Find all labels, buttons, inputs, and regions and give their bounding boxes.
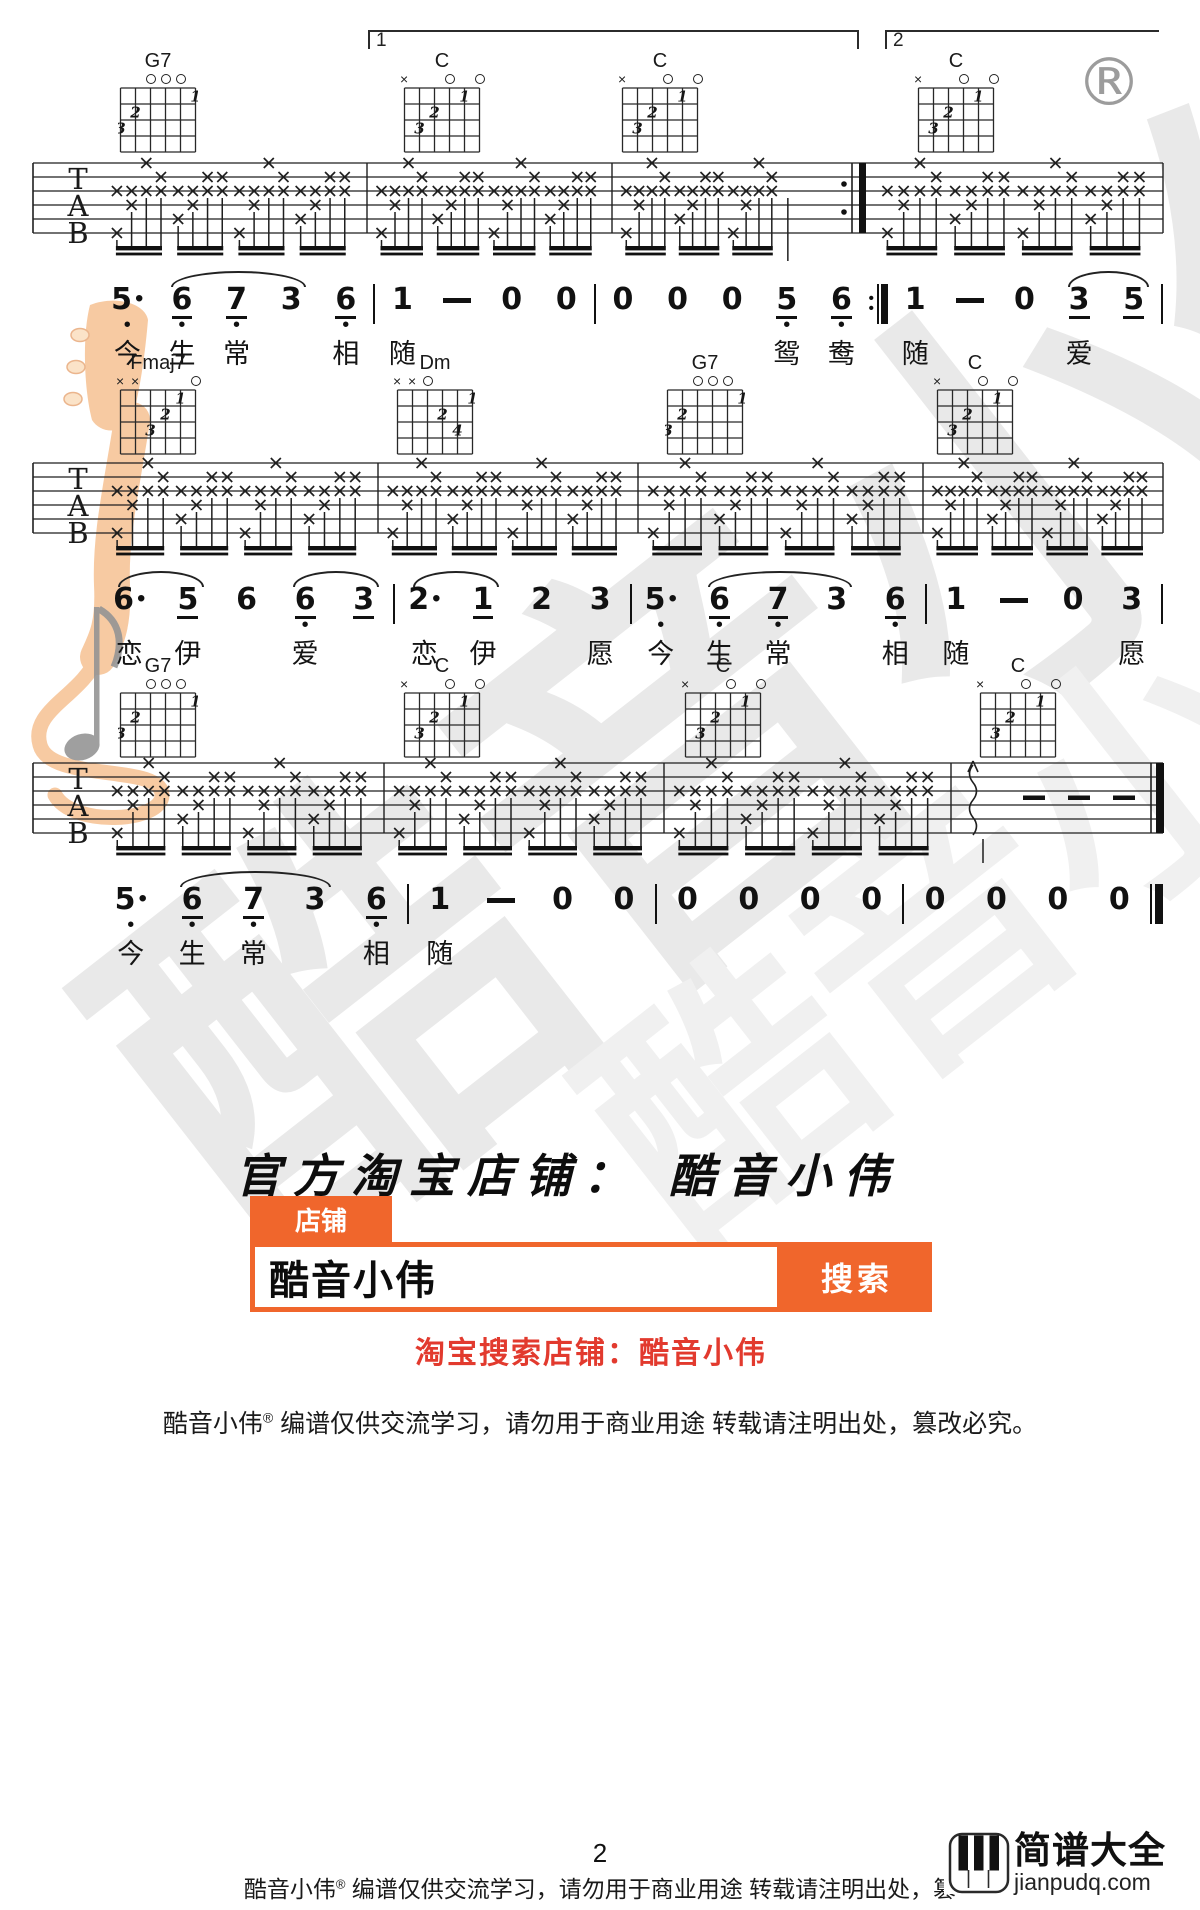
tab-staff: TAB [0,749,1200,877]
disclaimer-body: 编谱仅供交流学习，请勿用于商业用途 转载请注明出处，篡改必究。 [280,1410,1037,1438]
jianpu-digit: 5 [111,284,132,316]
open-string-icon [693,74,703,84]
site-logo[interactable]: 简谱大全 jianpudq.com [944,1832,1166,1894]
chord-string-markers: ×× [118,374,198,388]
jianpu-note: 2 [512,584,571,670]
jianpu-repeat-barline: •• [869,284,888,324]
svg-text:1: 1 [992,390,1002,408]
jianpu-note-row: 6 [236,584,257,618]
svg-text:2: 2 [1004,709,1015,727]
jianpu-dot-after: • [138,884,146,914]
jianpu-digit: 3 [304,884,325,916]
jianpu-digit: 5 [645,584,666,616]
piano-keys-icon [948,1832,1010,1894]
jianpu-note-row: 3 [281,284,302,318]
jianpu-note: 6•生 [161,884,222,970]
jianpu-note: 3 [264,284,319,370]
chord-grid: 321 [978,691,1058,761]
jianpu-note-row [1000,584,1028,618]
jianpu-dash [1000,598,1028,603]
jianpu-digit: 3 [1121,584,1142,616]
jianpu-note: 5••今 [632,584,691,670]
jianpu-digit: 0 [986,884,1007,916]
jianpu-digit: 0 [925,884,946,916]
jianpu-dot-after: • [137,584,145,614]
lyric-char: 常 [240,932,267,971]
shop-red-note: 淘宝搜索店铺：酷音小伟 [250,1328,932,1372]
open-string-icon [1008,376,1018,386]
jianpu-digit: 0 [614,884,635,916]
jianpu-note: 0 [1027,884,1088,970]
svg-text:3: 3 [928,120,938,138]
open-string-icon [756,679,766,689]
barline-thin [1150,884,1152,924]
svg-text:1: 1 [459,88,469,106]
svg-text:1: 1 [740,693,750,711]
muted-string-icon: × [400,676,408,692]
lyric-char: 随 [902,332,929,371]
svg-text:2: 2 [709,709,720,727]
jianpu-note-row: 6 [295,584,316,618]
svg-text:1: 1 [459,693,469,711]
chord-diagram-fmaj7: Fmaj7××321 [118,352,202,463]
disclaimer-text: 酷音小伟® 编谱仅供交流学习，请勿用于商业用途 转载请注明出处，篡改必究。 [0,1404,1200,1440]
jianpu-low-octave-dot: • [178,320,185,330]
jianpu-note-row: 1 [429,884,450,918]
svg-text:2: 2 [436,406,447,424]
open-string-icon [146,679,156,689]
logo-domain: jianpudq.com [1014,1870,1166,1894]
jianpu-note-row: 0 [677,884,698,918]
svg-text:B: B [67,816,88,850]
jianpu-note-row: 0 [614,884,635,918]
jianpu-low-octave-dot: • [342,320,349,330]
tab-staff: TAB [0,449,1200,577]
jianpu-note-row: 0 [800,884,821,918]
jianpu-low-octave-dot: • [124,320,131,330]
jianpu-measure: 0000 [657,884,903,970]
muted-string-icon: × [933,373,941,389]
chord-name: C [916,50,996,72]
jianpu-note-row: 1 [392,284,413,318]
jianpu-note-row: 3 [826,584,847,618]
search-input[interactable]: 酷音小伟 [250,1242,782,1312]
jianpu-dot-after: • [669,584,677,614]
logo-title: 简谱大全 [1014,1832,1166,1870]
chord-string-markers: × [935,374,1015,388]
jianpu-note: 0 [904,884,965,970]
open-string-icon [161,679,171,689]
jianpu-note-row: 0 [925,884,946,918]
jianpu-measure: 5••今6•生7•常36•相 [100,884,407,970]
jianpu-note: 6•爱 [276,584,335,670]
footer-reg-icon: ® [336,1876,346,1891]
jianpu-digit: 5 [177,584,198,619]
lyric-char: 爱 [292,632,319,671]
lyric-char: 相 [882,632,909,671]
jianpu-note: 3爱 [1052,284,1107,370]
jianpu-note-row: 1 [905,284,926,318]
jianpu-note: 5 [1106,284,1161,370]
chord-string-markers: × [402,72,482,86]
jianpu-low-octave-dot: • [783,320,790,330]
open-string-icon [1021,679,1031,689]
jianpu-note: 0 [596,284,651,370]
lyric-char: 常 [765,632,792,671]
shop-tab[interactable]: 店铺 [250,1196,392,1242]
jianpu-digit: 0 [1109,884,1130,916]
open-string-icon [708,376,718,386]
chord-diagram-c: C×321 [620,50,704,161]
jianpu-note-row: 7 [243,884,264,918]
jianpu-digit: 0 [1063,584,1084,616]
jianpu-low-octave-dot: • [838,320,845,330]
jianpu-note-row [956,284,984,318]
open-string-icon [191,376,201,386]
open-string-icon [445,679,455,689]
jianpu-note-row: 6 [831,284,852,318]
jianpu-digit: 5 [115,884,136,916]
chord-diagram-c: C×321 [402,50,486,161]
jianpu-note: 1随 [927,584,986,670]
svg-text:B: B [67,516,88,550]
chord-name: C [935,352,1015,374]
chord-name: C [978,655,1058,677]
jianpu-note-row: 3 [304,884,325,918]
svg-text:2: 2 [646,104,657,122]
jianpu-note-row: 6 [366,884,387,918]
jianpu-note-row: 1 [473,584,494,618]
tab-staff: TAB [0,149,1200,277]
muted-string-icon: × [914,71,922,87]
jianpu-digit: 6 [113,584,134,616]
jianpu-note-row: 7 [226,284,247,318]
chord-diagram-c: C×321 [935,352,1019,463]
jianpu-digit: 0 [552,884,573,916]
svg-text:3: 3 [118,120,126,138]
chord-name: C [683,655,763,677]
chord-diagram-c: C×321 [683,655,767,766]
lyric-char: 愿 [587,632,614,671]
svg-text:3: 3 [632,120,642,138]
jianpu-dot-after: • [432,584,440,614]
jianpu-low-octave-dot: • [127,920,134,930]
svg-text:3: 3 [665,422,673,440]
jianpu-note: 0 [1089,884,1150,970]
jianpu-digit: 1 [429,884,450,916]
jianpu-low-octave-dot: • [302,620,309,630]
chord-name: G7 [118,655,198,677]
chord-diagram-c: C×321 [978,655,1062,766]
jianpu-note-row: 0 [986,884,1007,918]
muted-string-icon: × [393,373,401,389]
chord-grid: 321 [118,388,198,458]
chord-name: Fmaj7 [118,352,198,374]
jianpu-note-row: 2 [531,584,552,618]
jianpu-note-row: 6 [885,584,906,618]
jianpu-note-row: 5• [111,284,143,318]
jianpu-low-octave-dot: • [250,920,257,930]
chord-name: C [402,655,482,677]
jianpu-note: 0 [841,884,902,970]
jianpu-final-barline [1150,884,1163,924]
chord-grid: 321 [402,86,482,156]
chord-string-markers: × [683,677,763,691]
muted-string-icon: × [400,71,408,87]
barline-thick [1155,884,1163,924]
jianpu-note-row: 5• [645,584,677,618]
jianpu-digit: 3 [826,584,847,616]
svg-text:3: 3 [118,725,126,743]
svg-text:1: 1 [175,390,185,408]
svg-text:3: 3 [947,422,957,440]
jianpu-note-row: 5 [776,284,797,318]
jianpu-note-row: 6 [335,284,356,318]
disclaimer-reg-icon: ® [263,1410,273,1426]
chord-string-markers [665,374,745,388]
jianpu-digit: 0 [1014,284,1035,316]
svg-text:B: B [67,216,88,250]
jianpu-note: 0 [966,884,1027,970]
open-string-icon [176,74,186,84]
footer-body: 编谱仅供交流学习，请勿用于商业用途 转载请注明出处，篡 [352,1876,956,1902]
jianpu-digit: 3 [353,584,374,619]
jianpu-low-octave-dot: • [892,620,899,630]
jianpu-note: 3愿 [1102,584,1161,670]
jianpu-digit: 1 [473,584,494,619]
chord-diagram-c: C×321 [916,50,1000,161]
jianpu-note-row: 3 [353,584,374,618]
jianpu-note: 0 [718,884,779,970]
chord-grid: 321 [916,86,996,156]
chord-name: C [402,50,482,72]
jianpu-note: 0 [657,884,718,970]
jianpu-note: 3 [284,884,345,970]
jianpu-note: 0 [780,884,841,970]
svg-text:3: 3 [414,725,424,743]
open-string-icon [423,376,433,386]
lyric-char: 今 [647,632,674,671]
open-string-icon [693,376,703,386]
jianpu-note: 0 [539,284,594,370]
lyric-char: 常 [223,332,250,371]
muted-string-icon: × [976,676,984,692]
jianpu-note: 5•鸳 [759,284,814,370]
lyric-char: 随 [426,932,453,971]
jianpu-note-row: 2• [408,584,440,618]
jianpu-note-row: 5 [1123,284,1144,318]
muted-string-icon: × [131,373,139,389]
lyric-char: 愿 [1118,632,1145,671]
svg-text:2: 2 [159,406,170,424]
jianpu-low-octave-dot: • [373,920,380,930]
open-string-icon [161,74,171,84]
chord-string-markers: × [402,677,482,691]
jianpu-measure: 5••今6•生7•常36•相 [632,584,925,670]
svg-text:2: 2 [129,104,140,122]
open-string-icon [723,376,733,386]
jianpu-measure: 1随03爱5 [888,284,1161,370]
jianpu-note-row: 0 [861,884,882,918]
open-string-icon [663,74,673,84]
jianpu-digit: 3 [1069,284,1090,319]
jianpu-digit: 0 [667,284,688,316]
jianpu-digit: 6 [236,584,257,616]
jianpu-note: 7•常 [223,884,284,970]
jianpu-note-row: 3 [1069,284,1090,318]
jianpu-note-row [443,284,471,318]
jianpu-digit: 1 [945,584,966,616]
footer-brand: 酷音小伟 [244,1876,336,1902]
jianpu-note: 6•鸯 [814,284,869,370]
jianpu-measure: 0000 [904,884,1150,970]
jianpu-note: 3 [807,584,866,670]
jianpu-note: 0 [484,284,539,370]
jianpu-note-row: 5• [115,884,147,918]
jianpu-note-row: 0 [1109,884,1130,918]
svg-text:3: 3 [695,725,705,743]
svg-text:1: 1 [190,693,198,711]
jianpu-note-row: 5 [177,584,198,618]
chord-string-markers: ×× [395,374,475,388]
svg-text:3: 3 [145,422,155,440]
jianpu-digit: 0 [722,284,743,316]
open-string-icon [176,679,186,689]
jianpu-measure: 1随00 [409,884,655,970]
jianpu-dash [443,298,471,303]
jianpu-digit: 0 [556,284,577,316]
jianpu-note-row: 6 [172,284,193,318]
svg-text:2: 2 [942,104,953,122]
jianpu-digit: 1 [392,284,413,316]
barline-thin [877,284,879,324]
lyric-char: 随 [942,632,969,671]
open-string-icon [475,74,485,84]
jianpu-note: 6•相 [319,284,374,370]
jianpu-note-row: 3 [1121,584,1142,618]
open-string-icon [445,74,455,84]
lyric-char: 相 [363,932,390,971]
jianpu-note-row: 0 [738,884,759,918]
jianpu-low-octave-dot: • [775,620,782,630]
chord-grid: 321 [620,86,700,156]
jianpu-note: 3 [334,584,393,670]
jianpu-low-octave-dot: • [657,620,664,630]
open-string-icon [1051,679,1061,689]
jianpu-note: 7•常 [209,284,264,370]
chord-string-markers: × [620,72,700,86]
open-string-icon [959,74,969,84]
svg-text:1: 1 [190,88,198,106]
chord-grid: 124 [395,388,475,458]
svg-text:2: 2 [961,406,972,424]
jianpu-barline [1161,584,1163,624]
jianpu-note: 3愿 [571,584,630,670]
svg-text:2: 2 [129,709,140,727]
search-button[interactable]: 搜索 [782,1242,932,1312]
chord-grid: 321 [665,388,745,458]
jianpu-note-row: 0 [556,284,577,318]
jianpu-digit: 0 [1047,884,1068,916]
logo-text-block: 简谱大全 jianpudq.com [1014,1832,1166,1894]
jianpu-note-row: 6 [182,884,203,918]
chord-grid: 321 [118,86,198,156]
jianpu-note-row: 0 [667,284,688,318]
lyric-char: 鸳 [773,332,800,371]
barline-thick [881,284,888,324]
svg-text:4: 4 [452,422,462,440]
lyric-char: 相 [332,332,359,371]
chord-grid: 321 [935,388,1015,458]
jianpu-low-octave-dot: • [716,620,723,630]
chord-diagram-g7: G7321 [118,50,202,161]
chord-string-markers: × [916,72,996,86]
jianpu-digit: 0 [800,884,821,916]
chord-string-markers [118,677,198,691]
jianpu-note: 5••今 [100,884,161,970]
lyric-char: 鸯 [828,332,855,371]
search-bar: 酷音小伟 搜索 [250,1242,932,1312]
jianpu-note-row: 0 [501,284,522,318]
jianpu-low-octave-dot: • [233,320,240,330]
jianpu-digit: 0 [738,884,759,916]
svg-text:3: 3 [414,120,424,138]
chord-diagram-c: C×321 [402,655,486,766]
svg-text:1: 1 [973,88,983,106]
jianpu-note: 6 [217,584,276,670]
jianpu-dot-after: • [135,284,143,314]
svg-text:3: 3 [990,725,1000,743]
jianpu-digit: 3 [281,284,302,316]
chord-diagram-dm: Dm××124 [395,352,479,463]
jianpu-note: 1随 [409,884,470,970]
jianpu-digit: 0 [612,284,633,316]
open-string-icon [978,376,988,386]
open-string-icon [146,74,156,84]
muted-string-icon: × [681,676,689,692]
svg-text:1: 1 [737,390,745,408]
jianpu-line: 5••今6•生7•常36•相1随0000000000 [100,884,1163,970]
jianpu-note-row: 6• [113,584,145,618]
muted-string-icon: × [618,71,626,87]
jianpu-digit: 1 [905,284,926,316]
jianpu-dash [487,898,515,903]
jianpu-note: 6•相 [866,584,925,670]
score-notation-area: G7321C×321C×321C×321TAB5••今6•生7•常36•相1随0… [0,0,1200,1000]
muted-string-icon: × [408,373,416,389]
jianpu-note: 0 [593,884,654,970]
jianpu-note-row: 0 [1014,284,1035,318]
chord-name: C [620,50,700,72]
chord-diagram-g7: G7321 [118,655,202,766]
jianpu-digit: 2 [408,584,429,616]
jianpu-digit: 0 [861,884,882,916]
sheet-page: 酷音小伟 酷音小伟 ® 1 2 G7321C×321C×321C×321TAB5… [0,0,1200,1910]
jianpu-note-row: 3 [590,584,611,618]
jianpu-note: 6•相 [346,884,407,970]
lyric-char: 爱 [1066,332,1093,371]
jianpu-note-row: 0 [552,884,573,918]
jianpu-note [470,884,531,970]
open-string-icon [726,679,736,689]
muted-string-icon: × [116,373,124,389]
jianpu-note: 0 [532,884,593,970]
open-string-icon [475,679,485,689]
jianpu-note-row: 0 [1047,884,1068,918]
chord-grid: 321 [402,691,482,761]
chord-grid: 321 [683,691,763,761]
chord-string-markers [118,72,198,86]
